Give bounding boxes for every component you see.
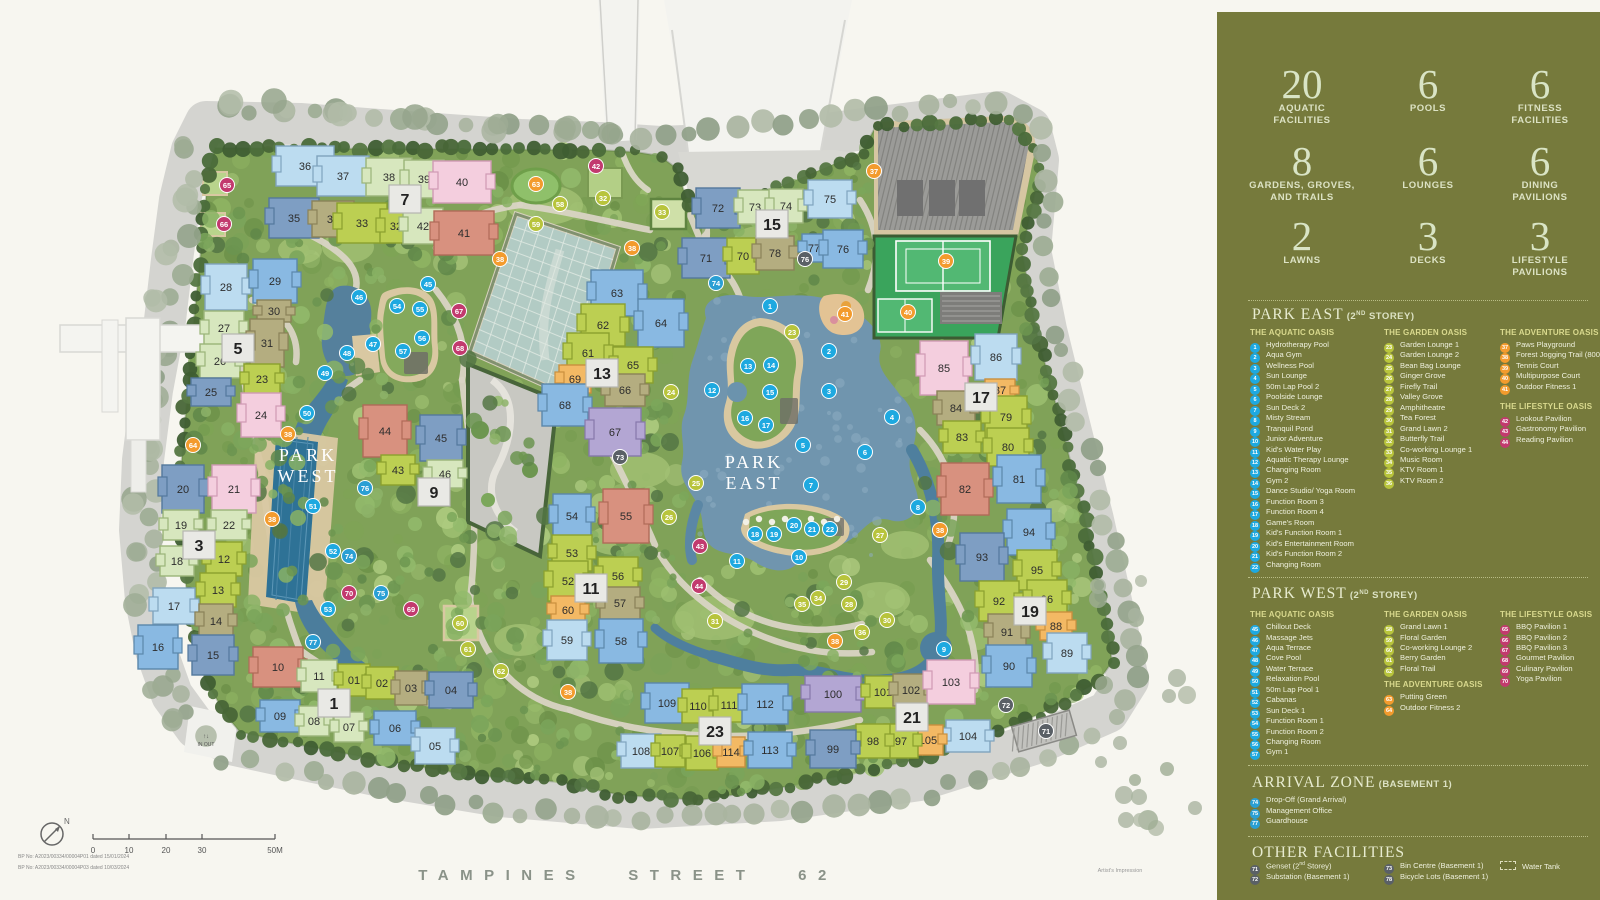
svg-text:38: 38 [268, 515, 276, 524]
svg-text:38: 38 [564, 688, 572, 697]
svg-text:75: 75 [824, 194, 836, 206]
svg-text:61: 61 [464, 645, 472, 654]
svg-text:04: 04 [445, 685, 457, 697]
svg-text:55: 55 [416, 305, 424, 314]
svg-text:16: 16 [741, 414, 749, 423]
svg-text:10: 10 [272, 662, 284, 674]
svg-text:19: 19 [770, 530, 778, 539]
svg-text:N: N [64, 817, 70, 826]
svg-text:57: 57 [614, 598, 626, 610]
svg-text:70: 70 [737, 251, 749, 263]
svg-text:32: 32 [599, 194, 607, 203]
svg-text:100: 100 [824, 689, 842, 701]
svg-text:68: 68 [456, 344, 464, 353]
svg-text:25: 25 [205, 387, 217, 399]
svg-text:14: 14 [210, 616, 222, 628]
svg-text:62: 62 [497, 667, 505, 676]
svg-text:40: 40 [456, 177, 468, 189]
svg-text:70: 70 [345, 589, 353, 598]
svg-text:40: 40 [904, 308, 912, 317]
svg-text:15: 15 [766, 388, 774, 397]
svg-text:55: 55 [620, 511, 632, 523]
svg-text:102: 102 [902, 685, 920, 697]
svg-text:18: 18 [751, 530, 759, 539]
svg-text:111: 111 [721, 700, 738, 712]
svg-text:27: 27 [876, 531, 884, 540]
svg-text:35: 35 [288, 213, 300, 225]
svg-text:22: 22 [826, 525, 834, 534]
svg-text:17: 17 [762, 421, 770, 430]
svg-text:44: 44 [379, 426, 391, 438]
svg-text:30: 30 [883, 616, 891, 625]
svg-text:42: 42 [417, 221, 429, 233]
svg-text:13: 13 [744, 362, 752, 371]
svg-text:07: 07 [343, 722, 355, 734]
svg-text:IN OUT: IN OUT [198, 742, 215, 748]
svg-text:34: 34 [814, 594, 823, 603]
svg-text:66: 66 [220, 220, 228, 229]
svg-text:76: 76 [837, 244, 849, 256]
svg-text:17: 17 [972, 390, 990, 407]
svg-text:TAMPINES STREET 62: TAMPINES STREET 62 [418, 867, 838, 884]
svg-text:24: 24 [667, 388, 676, 397]
svg-text:03: 03 [405, 683, 417, 695]
svg-text:109: 109 [658, 698, 676, 710]
svg-text:11: 11 [313, 671, 324, 683]
svg-text:38: 38 [284, 430, 292, 439]
svg-text:↑↓: ↑↓ [203, 734, 209, 740]
svg-text:54: 54 [393, 302, 402, 311]
svg-text:26: 26 [665, 513, 673, 522]
svg-text:59: 59 [532, 220, 540, 229]
svg-text:60: 60 [456, 619, 464, 628]
svg-text:45: 45 [424, 280, 432, 289]
svg-text:38: 38 [936, 526, 944, 535]
svg-text:14: 14 [767, 361, 776, 370]
svg-text:91: 91 [1001, 627, 1013, 639]
svg-text:28: 28 [845, 600, 853, 609]
svg-text:01: 01 [348, 675, 360, 687]
svg-text:PARK: PARK [279, 445, 337, 465]
svg-text:9: 9 [430, 485, 439, 502]
svg-text:Artist's Impression: Artist's Impression [1098, 868, 1143, 874]
svg-text:17: 17 [168, 601, 180, 613]
svg-text:112: 112 [756, 699, 774, 711]
svg-text:24: 24 [255, 410, 267, 422]
svg-text:81: 81 [1013, 474, 1025, 486]
svg-text:11: 11 [583, 581, 600, 598]
svg-text:76: 76 [801, 255, 809, 264]
svg-text:107: 107 [661, 746, 679, 758]
svg-text:43: 43 [392, 465, 404, 477]
svg-text:09: 09 [274, 711, 286, 723]
svg-text:38: 38 [383, 172, 395, 184]
svg-text:71: 71 [1042, 727, 1050, 736]
svg-text:11: 11 [733, 557, 741, 566]
svg-text:83: 83 [956, 432, 968, 444]
svg-text:27: 27 [218, 323, 230, 335]
svg-text:114: 114 [722, 747, 740, 759]
svg-text:29: 29 [840, 578, 848, 587]
svg-text:13: 13 [593, 366, 611, 383]
svg-text:57: 57 [399, 347, 407, 356]
svg-text:3: 3 [195, 538, 204, 555]
svg-text:67: 67 [609, 427, 621, 439]
svg-text:36: 36 [858, 628, 866, 637]
svg-text:53: 53 [566, 548, 578, 560]
svg-text:BP No: A2023/00334/00004P03 da: BP No: A2023/00334/00004P03 dated 10/03/… [18, 865, 129, 871]
svg-text:23: 23 [256, 374, 268, 386]
svg-text:44: 44 [695, 582, 704, 591]
svg-text:69: 69 [407, 605, 415, 614]
svg-text:110: 110 [689, 701, 707, 713]
svg-text:29: 29 [269, 276, 281, 288]
svg-text:56: 56 [418, 334, 426, 343]
svg-text:50M: 50M [267, 846, 283, 855]
svg-text:88: 88 [1050, 621, 1062, 633]
svg-text:38: 38 [628, 244, 636, 253]
svg-text:53: 53 [324, 605, 332, 614]
svg-text:75: 75 [377, 589, 385, 598]
svg-text:20: 20 [790, 521, 798, 530]
svg-text:05: 05 [429, 741, 441, 753]
svg-text:8: 8 [916, 503, 920, 512]
svg-text:59: 59 [561, 635, 573, 647]
svg-text:15: 15 [207, 650, 219, 662]
svg-text:25: 25 [692, 479, 700, 488]
svg-text:21: 21 [903, 710, 921, 727]
svg-text:WEST: WEST [278, 466, 339, 486]
svg-text:73: 73 [616, 453, 624, 462]
svg-text:30: 30 [198, 846, 207, 855]
svg-text:12: 12 [218, 554, 230, 566]
svg-text:113: 113 [761, 745, 779, 757]
svg-text:6: 6 [863, 448, 867, 457]
svg-text:62: 62 [597, 320, 609, 332]
svg-text:45: 45 [435, 433, 447, 445]
svg-text:63: 63 [532, 180, 540, 189]
svg-text:1: 1 [768, 302, 772, 311]
svg-text:39: 39 [418, 174, 430, 186]
svg-text:43: 43 [696, 542, 704, 551]
svg-text:93: 93 [976, 552, 988, 564]
svg-text:52: 52 [562, 576, 574, 588]
svg-text:PARK: PARK [725, 452, 783, 472]
svg-text:77: 77 [309, 638, 317, 647]
svg-text:5: 5 [801, 441, 805, 450]
svg-text:37: 37 [337, 171, 349, 183]
svg-text:42: 42 [592, 162, 600, 171]
svg-text:79: 79 [1000, 412, 1012, 424]
svg-text:23: 23 [706, 724, 724, 741]
svg-text:80: 80 [1002, 442, 1014, 454]
svg-text:36: 36 [299, 161, 311, 173]
svg-text:38: 38 [496, 255, 504, 264]
svg-text:12: 12 [708, 386, 716, 395]
svg-text:95: 95 [1031, 565, 1043, 577]
svg-text:BP No: A2023/00334/00004P01 da: BP No: A2023/00334/00004P01 dated 15/01/… [18, 854, 129, 860]
svg-text:67: 67 [455, 307, 463, 316]
svg-text:82: 82 [959, 484, 971, 496]
svg-text:71: 71 [700, 253, 712, 265]
svg-text:65: 65 [627, 360, 639, 372]
svg-text:47: 47 [369, 340, 377, 349]
svg-text:72: 72 [712, 203, 724, 215]
svg-text:13: 13 [212, 585, 224, 597]
svg-text:21: 21 [228, 484, 240, 496]
svg-text:65: 65 [223, 181, 231, 190]
svg-text:86: 86 [990, 352, 1002, 364]
svg-text:10: 10 [795, 553, 803, 562]
svg-text:31: 31 [711, 617, 719, 626]
svg-text:06: 06 [389, 723, 401, 735]
svg-text:76: 76 [361, 484, 369, 493]
svg-text:106: 106 [693, 748, 711, 760]
svg-text:08: 08 [308, 716, 320, 728]
svg-text:51: 51 [309, 502, 317, 511]
svg-text:1: 1 [330, 696, 339, 713]
svg-text:33: 33 [356, 218, 368, 230]
svg-text:63: 63 [611, 288, 623, 300]
svg-text:21: 21 [808, 525, 816, 534]
svg-text:35: 35 [798, 600, 806, 609]
svg-text:20: 20 [177, 484, 189, 496]
svg-text:90: 90 [1003, 661, 1015, 673]
svg-text:58: 58 [615, 636, 627, 648]
svg-text:64: 64 [189, 441, 198, 450]
svg-text:22: 22 [223, 520, 235, 532]
svg-text:54: 54 [566, 511, 578, 523]
svg-text:92: 92 [993, 596, 1005, 608]
svg-text:58: 58 [556, 200, 564, 209]
svg-text:84: 84 [950, 403, 962, 415]
svg-text:74: 74 [345, 552, 354, 561]
svg-text:31: 31 [261, 338, 273, 350]
svg-text:7: 7 [401, 192, 410, 209]
svg-text:50: 50 [303, 409, 311, 418]
svg-text:66: 66 [619, 385, 631, 397]
svg-text:39: 39 [942, 257, 950, 266]
svg-text:56: 56 [612, 571, 624, 583]
svg-text:99: 99 [827, 744, 839, 756]
svg-text:104: 104 [959, 731, 977, 743]
svg-text:41: 41 [841, 310, 849, 319]
svg-text:46: 46 [355, 293, 363, 302]
svg-text:23: 23 [788, 328, 796, 337]
svg-text:16: 16 [152, 642, 164, 654]
svg-text:5: 5 [234, 341, 243, 358]
svg-text:EAST: EAST [726, 473, 783, 493]
svg-text:7: 7 [809, 481, 813, 490]
svg-text:60: 60 [562, 605, 574, 617]
svg-text:18: 18 [171, 556, 183, 568]
svg-text:9: 9 [942, 645, 946, 654]
svg-text:33: 33 [658, 208, 666, 217]
svg-text:74: 74 [712, 279, 721, 288]
svg-text:94: 94 [1023, 527, 1035, 539]
svg-text:20: 20 [162, 846, 171, 855]
svg-text:02: 02 [376, 678, 388, 690]
svg-text:28: 28 [220, 282, 232, 294]
svg-text:19: 19 [1021, 604, 1039, 621]
svg-text:97: 97 [895, 736, 907, 748]
svg-text:61: 61 [582, 348, 594, 360]
svg-text:78: 78 [769, 248, 781, 260]
svg-text:72: 72 [1002, 701, 1010, 710]
svg-text:48: 48 [343, 349, 351, 358]
svg-text:103: 103 [942, 677, 960, 689]
svg-text:38: 38 [831, 637, 839, 646]
svg-text:41: 41 [458, 228, 470, 240]
svg-text:2: 2 [827, 347, 831, 356]
svg-text:3: 3 [827, 387, 831, 396]
svg-text:49: 49 [321, 369, 329, 378]
svg-text:19: 19 [175, 520, 187, 532]
svg-text:15: 15 [763, 217, 781, 234]
svg-text:68: 68 [559, 400, 571, 412]
svg-text:85: 85 [938, 363, 950, 375]
svg-text:108: 108 [632, 746, 650, 758]
svg-text:52: 52 [329, 547, 337, 556]
svg-text:64: 64 [655, 318, 667, 330]
svg-text:89: 89 [1061, 648, 1073, 660]
svg-text:37: 37 [870, 167, 878, 176]
svg-text:30: 30 [268, 306, 280, 318]
svg-text:98: 98 [867, 736, 879, 748]
